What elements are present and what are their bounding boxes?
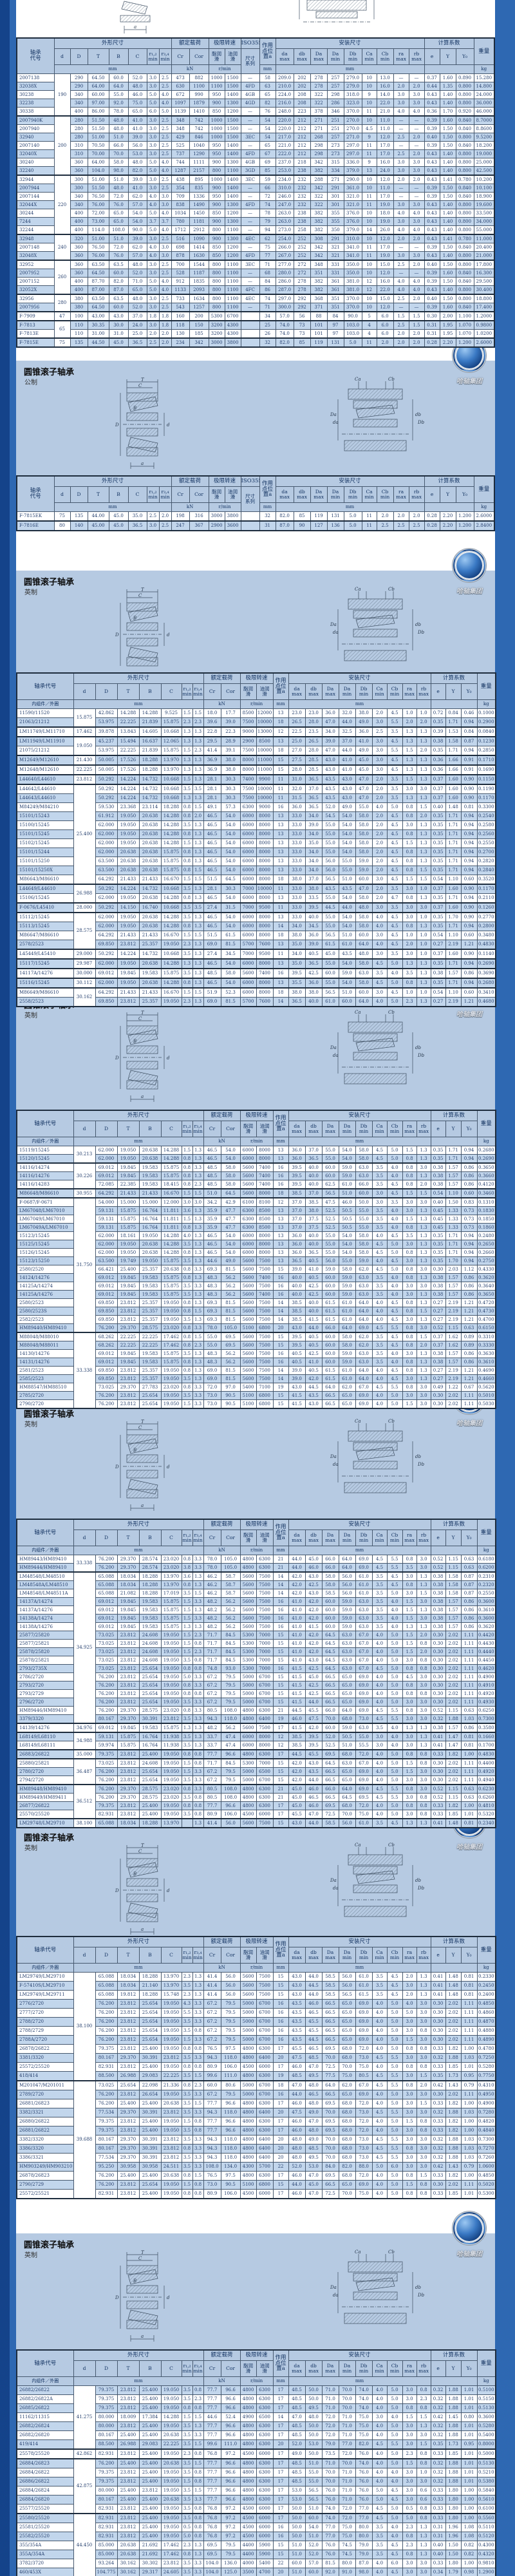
cell: 52.0 — [288, 2163, 305, 2172]
cell: 1.00 — [461, 1802, 477, 1810]
cell: 6000 — [240, 978, 256, 988]
cell: 4.0 — [372, 2422, 387, 2431]
cell: 4800 — [240, 2477, 256, 2486]
header-cell: ISO355 — [241, 38, 259, 49]
cell: 23.812 — [117, 2126, 139, 2136]
cell: 0.86 — [461, 969, 477, 978]
cell: 1.33 — [445, 1224, 461, 1232]
bore-diameter-group: 17.462 — [73, 727, 95, 737]
cell: 3EC — [241, 260, 259, 269]
cell: 43.0 — [339, 784, 355, 794]
cell: 37.0 — [305, 1146, 322, 1155]
cell: 3.0 — [417, 2108, 431, 2117]
cell: 36.0 — [355, 727, 372, 737]
cell: 58.0 — [109, 158, 128, 167]
cell: 16.300 — [474, 269, 494, 278]
cell: 0.36 — [431, 755, 445, 765]
header-cell: 重量 — [477, 1519, 496, 1546]
cell: 2.6000 — [474, 512, 494, 522]
cell: 3.3 — [192, 2145, 203, 2154]
cell: 1.11 — [461, 2036, 477, 2045]
cell: 379.0 — [344, 226, 362, 235]
cell: 3.0 — [182, 1198, 192, 1207]
cell: 5600 — [240, 1623, 256, 1631]
cell: 1100 — [225, 226, 241, 235]
cell: 30.391 — [139, 2108, 161, 2117]
cell: 61.0 — [339, 1367, 355, 1375]
cell: 6700 — [225, 312, 241, 321]
cell: 23.812 — [117, 2117, 139, 2126]
cell: 0.27 — [431, 1307, 445, 1316]
header-cell: 内组件／外圈 — [17, 700, 73, 709]
cell: 0.8 — [402, 1299, 417, 1307]
cell: 3500 — [240, 2568, 256, 2576]
cell: 68.262 — [95, 1341, 117, 1350]
header-cell — [431, 700, 477, 709]
cell: 0.1660 — [477, 1732, 496, 1741]
cell: 271 — [327, 175, 344, 184]
cell: 2.5 — [159, 82, 171, 91]
cell: 45.0 — [109, 521, 128, 531]
cell: 0.5840 — [477, 2486, 496, 2495]
cell: 57.0 — [128, 252, 147, 261]
cell: 42.0 — [305, 1640, 322, 1648]
bearing-code: 2007940K — [17, 116, 54, 125]
cell: 0.800 — [456, 167, 474, 176]
cell: 96.6 — [221, 2099, 240, 2108]
cell: 82.931 — [95, 2190, 117, 2199]
cell: 4.0 — [372, 2568, 387, 2576]
cell: 0.28 — [424, 512, 440, 522]
cell: 1200 — [225, 252, 241, 261]
cell: 25.357 — [139, 1367, 161, 1375]
bearing-code: 2788/2729 — [17, 2027, 73, 2036]
cell: 16 — [273, 1172, 288, 1180]
cell: 2.19 — [445, 1316, 461, 1324]
cell: 43.0 — [109, 312, 128, 321]
cell: 29.500 — [474, 278, 494, 286]
cell: 25.654 — [139, 2018, 161, 2027]
cell: 1.82 — [445, 2126, 461, 2136]
cell: 54.0 — [339, 1155, 355, 1164]
cell: 4.5 — [387, 1232, 402, 1240]
cell: 0.920 — [456, 108, 474, 117]
cell: 29.370 — [117, 2054, 139, 2063]
cell: 80.167 — [95, 2136, 117, 2145]
cell: 1.80 — [445, 2514, 461, 2523]
cell: 64.0 — [355, 1316, 372, 1324]
bearing-code: 32044X — [17, 201, 54, 209]
cell: 63.0 — [339, 1631, 355, 1640]
cell: 3.0 — [417, 1198, 431, 1207]
cell: 2.5 — [377, 521, 393, 531]
cell: 50.0 — [305, 2422, 322, 2431]
cell: 1.3 — [192, 1155, 203, 1164]
cell: 1.3 — [192, 1581, 203, 1589]
cell: 42.9 — [221, 1198, 240, 1207]
header-cell: T — [88, 49, 109, 65]
cell: 16 — [273, 803, 288, 812]
cell: 79.375 — [95, 1750, 117, 1759]
cell: 1100 — [189, 82, 209, 91]
cell: 48.2 — [203, 1615, 221, 1623]
cell: 76.200 — [95, 1698, 117, 1707]
cell: 73.025 — [95, 1383, 117, 1392]
cell: 0.31 — [424, 321, 440, 330]
header-cell: rb max — [417, 684, 431, 700]
cell: 46.0 — [305, 1564, 322, 1573]
cell: 20.638 — [161, 1265, 182, 1274]
cell: 73.0 — [203, 1392, 221, 1400]
cell: 1.58 — [445, 737, 461, 746]
header-cell: 计算系数 — [431, 1110, 477, 1121]
cell: 50.0 — [288, 2514, 305, 2523]
cell: 0.8 — [182, 1274, 192, 1282]
header-cell: d — [73, 2361, 95, 2377]
cell: 23.812 — [117, 2000, 139, 2009]
cell: 0.86 — [461, 1163, 477, 1172]
bore-diameter-group: 38.100 — [73, 1973, 95, 2081]
cell: 8000 — [256, 922, 273, 931]
cell: 66.0 — [322, 1707, 339, 1715]
cell: 45.0 — [288, 1785, 305, 1794]
cell: 3.7 — [147, 218, 159, 226]
cell: 18.288 — [161, 803, 182, 812]
cell: 4.5 — [387, 940, 402, 950]
cell: 266.0 — [276, 243, 294, 252]
cell: 54.0 — [128, 218, 147, 226]
cell: 23.812 — [117, 2532, 139, 2541]
cell: 1.3 — [192, 1367, 203, 1375]
cell: 1.40 — [440, 286, 456, 295]
cell: 37.0 — [288, 1198, 305, 1207]
cell: 41.4 — [203, 1982, 221, 1991]
cell: 15.875 — [161, 1623, 182, 1631]
cell: 56.2 — [221, 1723, 240, 1732]
cell: 4.0 — [159, 226, 171, 235]
header-cell: r₃,₄ min — [192, 1121, 203, 1137]
cell: 51.0 — [288, 2550, 305, 2559]
cell: 1500 — [225, 82, 241, 91]
cell: 25.400 — [139, 2468, 161, 2477]
cell: 56.5 — [305, 2486, 322, 2495]
header-cell: Da min — [327, 487, 344, 503]
cell: 0.91 — [461, 765, 477, 775]
cell: 67.0 — [355, 1631, 372, 1640]
cell: 79.375 — [95, 2477, 117, 2486]
cell: 14.150 — [117, 903, 139, 913]
cell: 23.812 — [117, 2505, 139, 2514]
cell: 76.200 — [95, 1564, 117, 1573]
cell: 72.0 — [339, 2514, 355, 2523]
cell: 54.0 — [221, 830, 240, 839]
cell: 4.0 — [387, 969, 402, 978]
cell: 0.32 — [431, 2431, 445, 2440]
cell: 800 — [209, 167, 225, 176]
cell: 63.0 — [355, 1623, 372, 1631]
cell: 4800 — [240, 1564, 256, 1573]
cell: 68.0 — [339, 2099, 355, 2108]
cell: 5600 — [240, 1189, 256, 1198]
cell: 23.812 — [117, 2422, 139, 2431]
cell: 4800 — [240, 2154, 256, 2163]
cell: 11 — [362, 338, 377, 347]
table-row: LM11749/LM1171017.46239.87813.84314.6051… — [17, 727, 496, 737]
cell: 1.11 — [461, 2000, 477, 2009]
cell: 23.020 — [161, 1794, 182, 1802]
cell: 0.8 — [182, 1172, 192, 1180]
bearing-code: L44640/L44610 — [17, 775, 73, 784]
header-cell — [431, 1137, 477, 1146]
header-cell: db max — [294, 49, 310, 65]
cell: 0.32 — [431, 2404, 445, 2413]
cell: 61.5 — [322, 1316, 339, 1324]
cell: 94.3 — [203, 2145, 221, 2154]
cell: 3.0 — [402, 2018, 417, 2027]
cell: 0.81 — [461, 1991, 477, 2000]
cell: 20.638 — [161, 2172, 182, 2181]
cell: 0.8 — [182, 830, 192, 839]
cell: 6.0 — [377, 312, 393, 321]
cell: 3.0 — [409, 91, 424, 99]
cell: 76.200 — [95, 1555, 117, 1564]
cell: 5.0 — [387, 2449, 402, 2459]
cell: 3.0 — [402, 1316, 417, 1324]
cell: 5000 — [240, 1690, 256, 1698]
cell: 12.000 — [161, 1198, 182, 1207]
cell: 3.0 — [417, 2000, 431, 2009]
cell: 0.6200 — [477, 1564, 496, 1573]
bearing-code: 460/453X — [17, 2568, 73, 2576]
cell: 19.000 — [474, 150, 494, 158]
cell: 4FD — [241, 201, 259, 209]
cell: 3.5 — [182, 949, 192, 959]
cell: 0.800 — [456, 209, 474, 218]
cell: 252 — [294, 252, 310, 261]
cell: 59.131 — [95, 1215, 117, 1224]
cell: 42.0 — [305, 1598, 322, 1606]
bearing-code: 32040X — [17, 150, 54, 158]
cell: 72.0 — [322, 2422, 339, 2431]
cell: 25.400 — [139, 2514, 161, 2523]
cell: 3.5 — [182, 913, 192, 922]
cell: 94.3 — [203, 2136, 221, 2145]
cell: 3.5 — [372, 1224, 387, 1232]
cell: 1.60 — [445, 949, 461, 959]
cell: 80.9 — [203, 1810, 221, 1819]
cell: 0.3600 — [477, 1615, 496, 1623]
cell: 1.11 — [461, 1392, 477, 1400]
cell: 0.89 — [461, 1332, 477, 1341]
bearing-code: 2007138 — [17, 74, 54, 82]
cell: 72.0 — [355, 1802, 372, 1810]
cell: 96.6 — [221, 2477, 240, 2486]
header-cell: 作用 点位 置a — [259, 38, 276, 65]
cell: 0.90 — [461, 884, 477, 894]
cell: 310 — [70, 142, 88, 150]
cell: 0.8 — [402, 2404, 417, 2413]
cell: 0.63 — [461, 1785, 477, 1794]
cell: 17.526 — [117, 755, 139, 765]
cell: 22.225 — [117, 1341, 139, 1350]
cell: 4500 — [240, 2190, 256, 2199]
cell: 1.5 — [192, 2413, 203, 2422]
header-cell: mm — [273, 700, 288, 709]
cell: 3.3 — [192, 1598, 203, 1606]
cell: 5600 — [240, 1350, 256, 1358]
cell: 54.0 — [221, 1232, 240, 1240]
cell: 277.0 — [276, 260, 294, 269]
bearing-code: 14125A/14274 — [17, 1282, 73, 1291]
cell: 1500 — [225, 133, 241, 142]
cell: 45.0 — [305, 1555, 322, 1564]
cell: 55.0 — [322, 1155, 339, 1164]
cell: 3.5 — [372, 1982, 387, 1991]
cell: 0.89 — [461, 1341, 477, 1350]
cell: 47.7 — [221, 1215, 240, 1224]
cell: 1.3 — [402, 1819, 417, 1828]
cell: 74.0 — [355, 2404, 372, 2413]
cell: 60.0 — [322, 969, 339, 978]
cell: 2.0 — [372, 884, 387, 894]
cell: 3.5 — [372, 969, 387, 978]
cell: 81.5 — [221, 998, 240, 1007]
cell: 4.0 — [372, 803, 387, 812]
cell: 18 — [273, 1189, 288, 1198]
cell: 3.0 — [402, 1698, 417, 1707]
cell: 3000 — [209, 512, 225, 522]
cell: 3.0 — [147, 521, 159, 531]
cell: 0.35 — [431, 848, 445, 857]
bearing-code: M201047/M201011 — [17, 2081, 73, 2090]
cell: 3.0 — [402, 1810, 417, 1819]
bearing-section-diagram: TCBDda — [105, 377, 177, 471]
cell: 0.37 — [431, 784, 445, 794]
cell: 6300 — [256, 2404, 273, 2413]
header-cell: e — [431, 2361, 445, 2377]
cell: 5.0 — [147, 226, 159, 235]
cell: 4.5 — [387, 737, 402, 746]
cell: 3.5 — [192, 903, 203, 913]
header-cell: 安装尺寸 — [288, 673, 431, 684]
cell: 8000 — [256, 1232, 273, 1240]
cell: 5100 — [240, 1392, 256, 1400]
diagram-fragment: a — [16, 0, 495, 37]
bearing-code: 25880/25821 — [17, 1759, 73, 1768]
table-row: L44642/L4461025.40050.29214.22414.73210.… — [17, 784, 496, 794]
cell: 3.5 — [387, 903, 402, 913]
cell: 16.670 — [161, 1189, 182, 1198]
cell: 76.200 — [95, 1794, 117, 1802]
cell: 25.400 — [139, 2190, 161, 2199]
cell: 51.0 — [339, 988, 355, 998]
cell: 1.8 — [159, 312, 171, 321]
cell: 2.19 — [445, 940, 461, 950]
cell: 1.80 — [445, 2486, 461, 2495]
cell: 62.000 — [95, 978, 117, 988]
cell: 3.0 — [402, 2495, 417, 2505]
cell: 301 — [327, 201, 344, 209]
cell: 0.31 — [424, 330, 440, 339]
bearing-code: 2793/2729 — [17, 1690, 73, 1698]
cell: 79.5 — [221, 2036, 240, 2045]
cell: 2.5 — [159, 260, 171, 269]
header-cell: Cb min — [387, 1530, 402, 1546]
cell: 0.2750 — [477, 1257, 496, 1265]
cell: 0.8 — [182, 2404, 192, 2413]
cell: 4.5 — [372, 1155, 387, 1164]
cell: 12.0 — [377, 303, 393, 312]
cell: 19.583 — [139, 1623, 161, 1631]
cell: 7400 — [256, 1180, 273, 1189]
cell: 8000 — [256, 894, 273, 904]
cell: 4GD — [241, 99, 259, 108]
header-cell: 安装尺寸 — [276, 476, 424, 487]
cell: 69.012 — [95, 1615, 117, 1623]
bearing-code: 32956 — [17, 294, 54, 303]
cell: 7500 — [256, 1282, 273, 1291]
cell: 17.0 — [377, 193, 393, 201]
cell: 16 — [273, 1623, 288, 1631]
cell: 355 — [327, 209, 344, 218]
cell: 68.0 — [339, 2136, 355, 2145]
cell: 46.0 — [288, 2063, 305, 2072]
cell: 69.0 — [355, 1400, 372, 1409]
cell: 5.5 — [387, 1324, 402, 1333]
cell: 1.40 — [440, 201, 456, 209]
cell: 15 — [273, 1759, 288, 1768]
cell: 5.0 — [387, 2404, 402, 2413]
cell: 5.0 — [372, 2163, 387, 2172]
cell: 0.43 — [424, 99, 440, 108]
cell: 48.5 — [203, 1172, 221, 1180]
cell: 39.5 — [305, 1741, 322, 1750]
cell: 0.8 — [182, 2550, 192, 2559]
cell: 0.27 — [431, 1367, 445, 1375]
header-cell: 油润 滑 — [256, 1121, 273, 1137]
cell: 202 — [294, 82, 310, 91]
cell: 71.0 — [339, 2422, 355, 2431]
cell: 73 — [294, 330, 310, 339]
cell: 0.42 — [431, 2081, 445, 2090]
cell: 36.5 — [305, 794, 322, 803]
cell: 7400 — [240, 775, 256, 784]
cell: 40.0 — [305, 1307, 322, 1316]
cell: 0.32 — [431, 2136, 445, 2145]
cell: 4.0 — [372, 1698, 387, 1707]
cell: 48.5 — [288, 2431, 305, 2440]
bearing-code: 2794/2720 — [17, 1776, 73, 1785]
cell: 1414 — [189, 243, 209, 252]
cell: 3.5 — [372, 1819, 387, 1828]
cell: 69.0 — [355, 1564, 372, 1573]
cell: 0.35 — [431, 830, 445, 839]
bearing-code: 15101/15244 — [17, 848, 73, 857]
cell: 34.2 — [203, 1198, 221, 1207]
cell: 1.5 — [402, 746, 417, 756]
cell: 52.0 — [305, 2550, 322, 2559]
cell: 18 — [273, 718, 288, 728]
cell: 76.200 — [95, 1392, 117, 1400]
cell: 23.812 — [117, 2036, 139, 2045]
cell: 14 — [273, 1581, 288, 1589]
cell: 79 — [259, 218, 276, 226]
cell: 100 — [70, 312, 88, 321]
cell: 3.5 — [182, 1732, 192, 1741]
cell: 0.8 — [192, 2181, 203, 2190]
cell: 39.0 — [221, 718, 240, 728]
cell: 59.0 — [339, 1623, 355, 1631]
